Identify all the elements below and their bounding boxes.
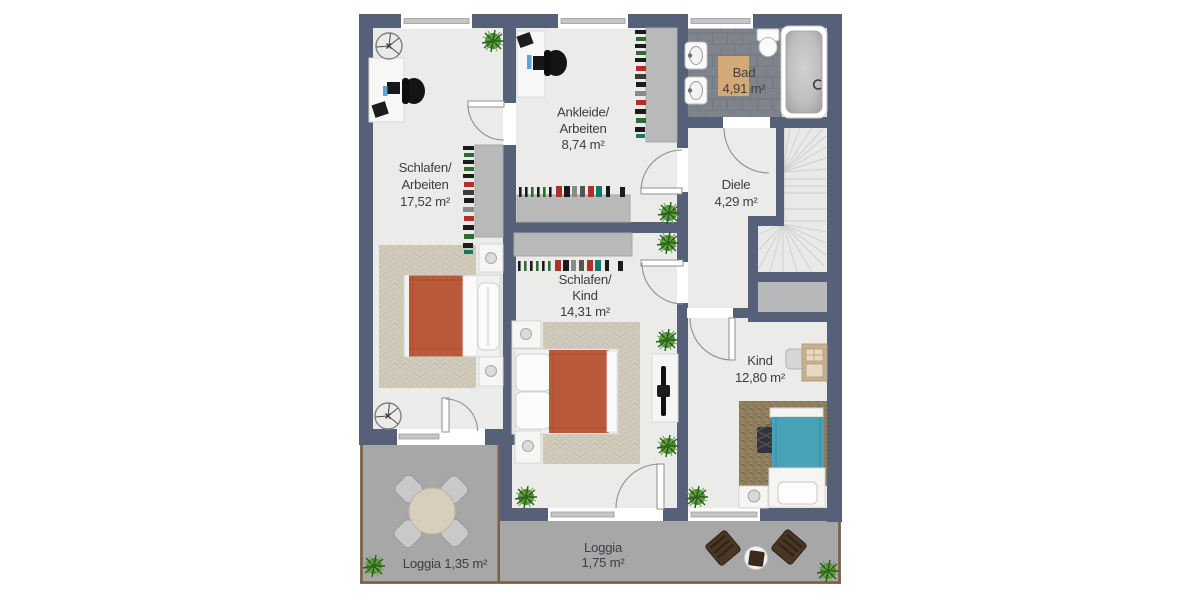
svg-text:Loggia 1,35 m²: Loggia 1,35 m² bbox=[403, 556, 488, 571]
svg-text:8,74 m²: 8,74 m² bbox=[562, 137, 606, 152]
svg-text:4,91 m²: 4,91 m² bbox=[723, 81, 767, 96]
svg-text:Arbeiten: Arbeiten bbox=[559, 121, 606, 136]
svg-text:Diele: Diele bbox=[722, 177, 751, 192]
svg-text:Loggia: Loggia bbox=[584, 540, 623, 555]
svg-text:1,75 m²: 1,75 m² bbox=[582, 555, 626, 570]
svg-text:Schlafen/: Schlafen/ bbox=[399, 160, 452, 175]
svg-text:Bad: Bad bbox=[733, 65, 756, 80]
svg-text:Schlafen/: Schlafen/ bbox=[559, 272, 612, 287]
svg-text:17,52 m²: 17,52 m² bbox=[400, 194, 451, 209]
svg-text:4,29 m²: 4,29 m² bbox=[715, 194, 759, 209]
svg-text:Kind: Kind bbox=[572, 288, 597, 303]
svg-text:Arbeiten: Arbeiten bbox=[401, 177, 448, 192]
svg-text:Ankleide/: Ankleide/ bbox=[557, 105, 610, 120]
svg-text:12,80 m²: 12,80 m² bbox=[735, 370, 786, 385]
svg-text:Kind: Kind bbox=[747, 353, 772, 368]
svg-text:14,31 m²: 14,31 m² bbox=[560, 304, 611, 319]
